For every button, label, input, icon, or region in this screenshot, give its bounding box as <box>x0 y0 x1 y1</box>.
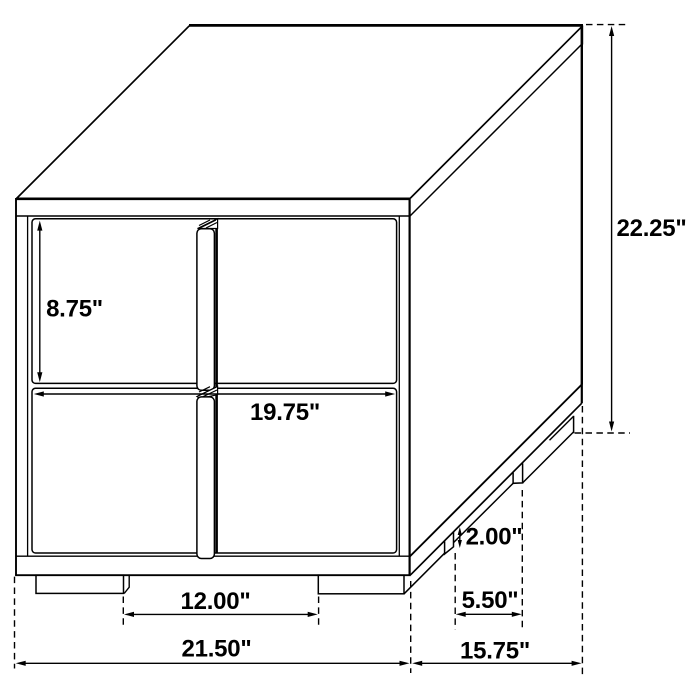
svg-text:21.50": 21.50" <box>182 636 252 663</box>
svg-text:5.50": 5.50" <box>462 587 519 614</box>
svg-text:8.75": 8.75" <box>46 296 103 323</box>
svg-text:2.00": 2.00" <box>466 524 523 551</box>
svg-text:22.25": 22.25" <box>617 215 687 242</box>
svg-text:15.75": 15.75" <box>460 638 530 665</box>
svg-text:19.75": 19.75" <box>250 399 320 426</box>
svg-text:12.00": 12.00" <box>181 588 251 615</box>
